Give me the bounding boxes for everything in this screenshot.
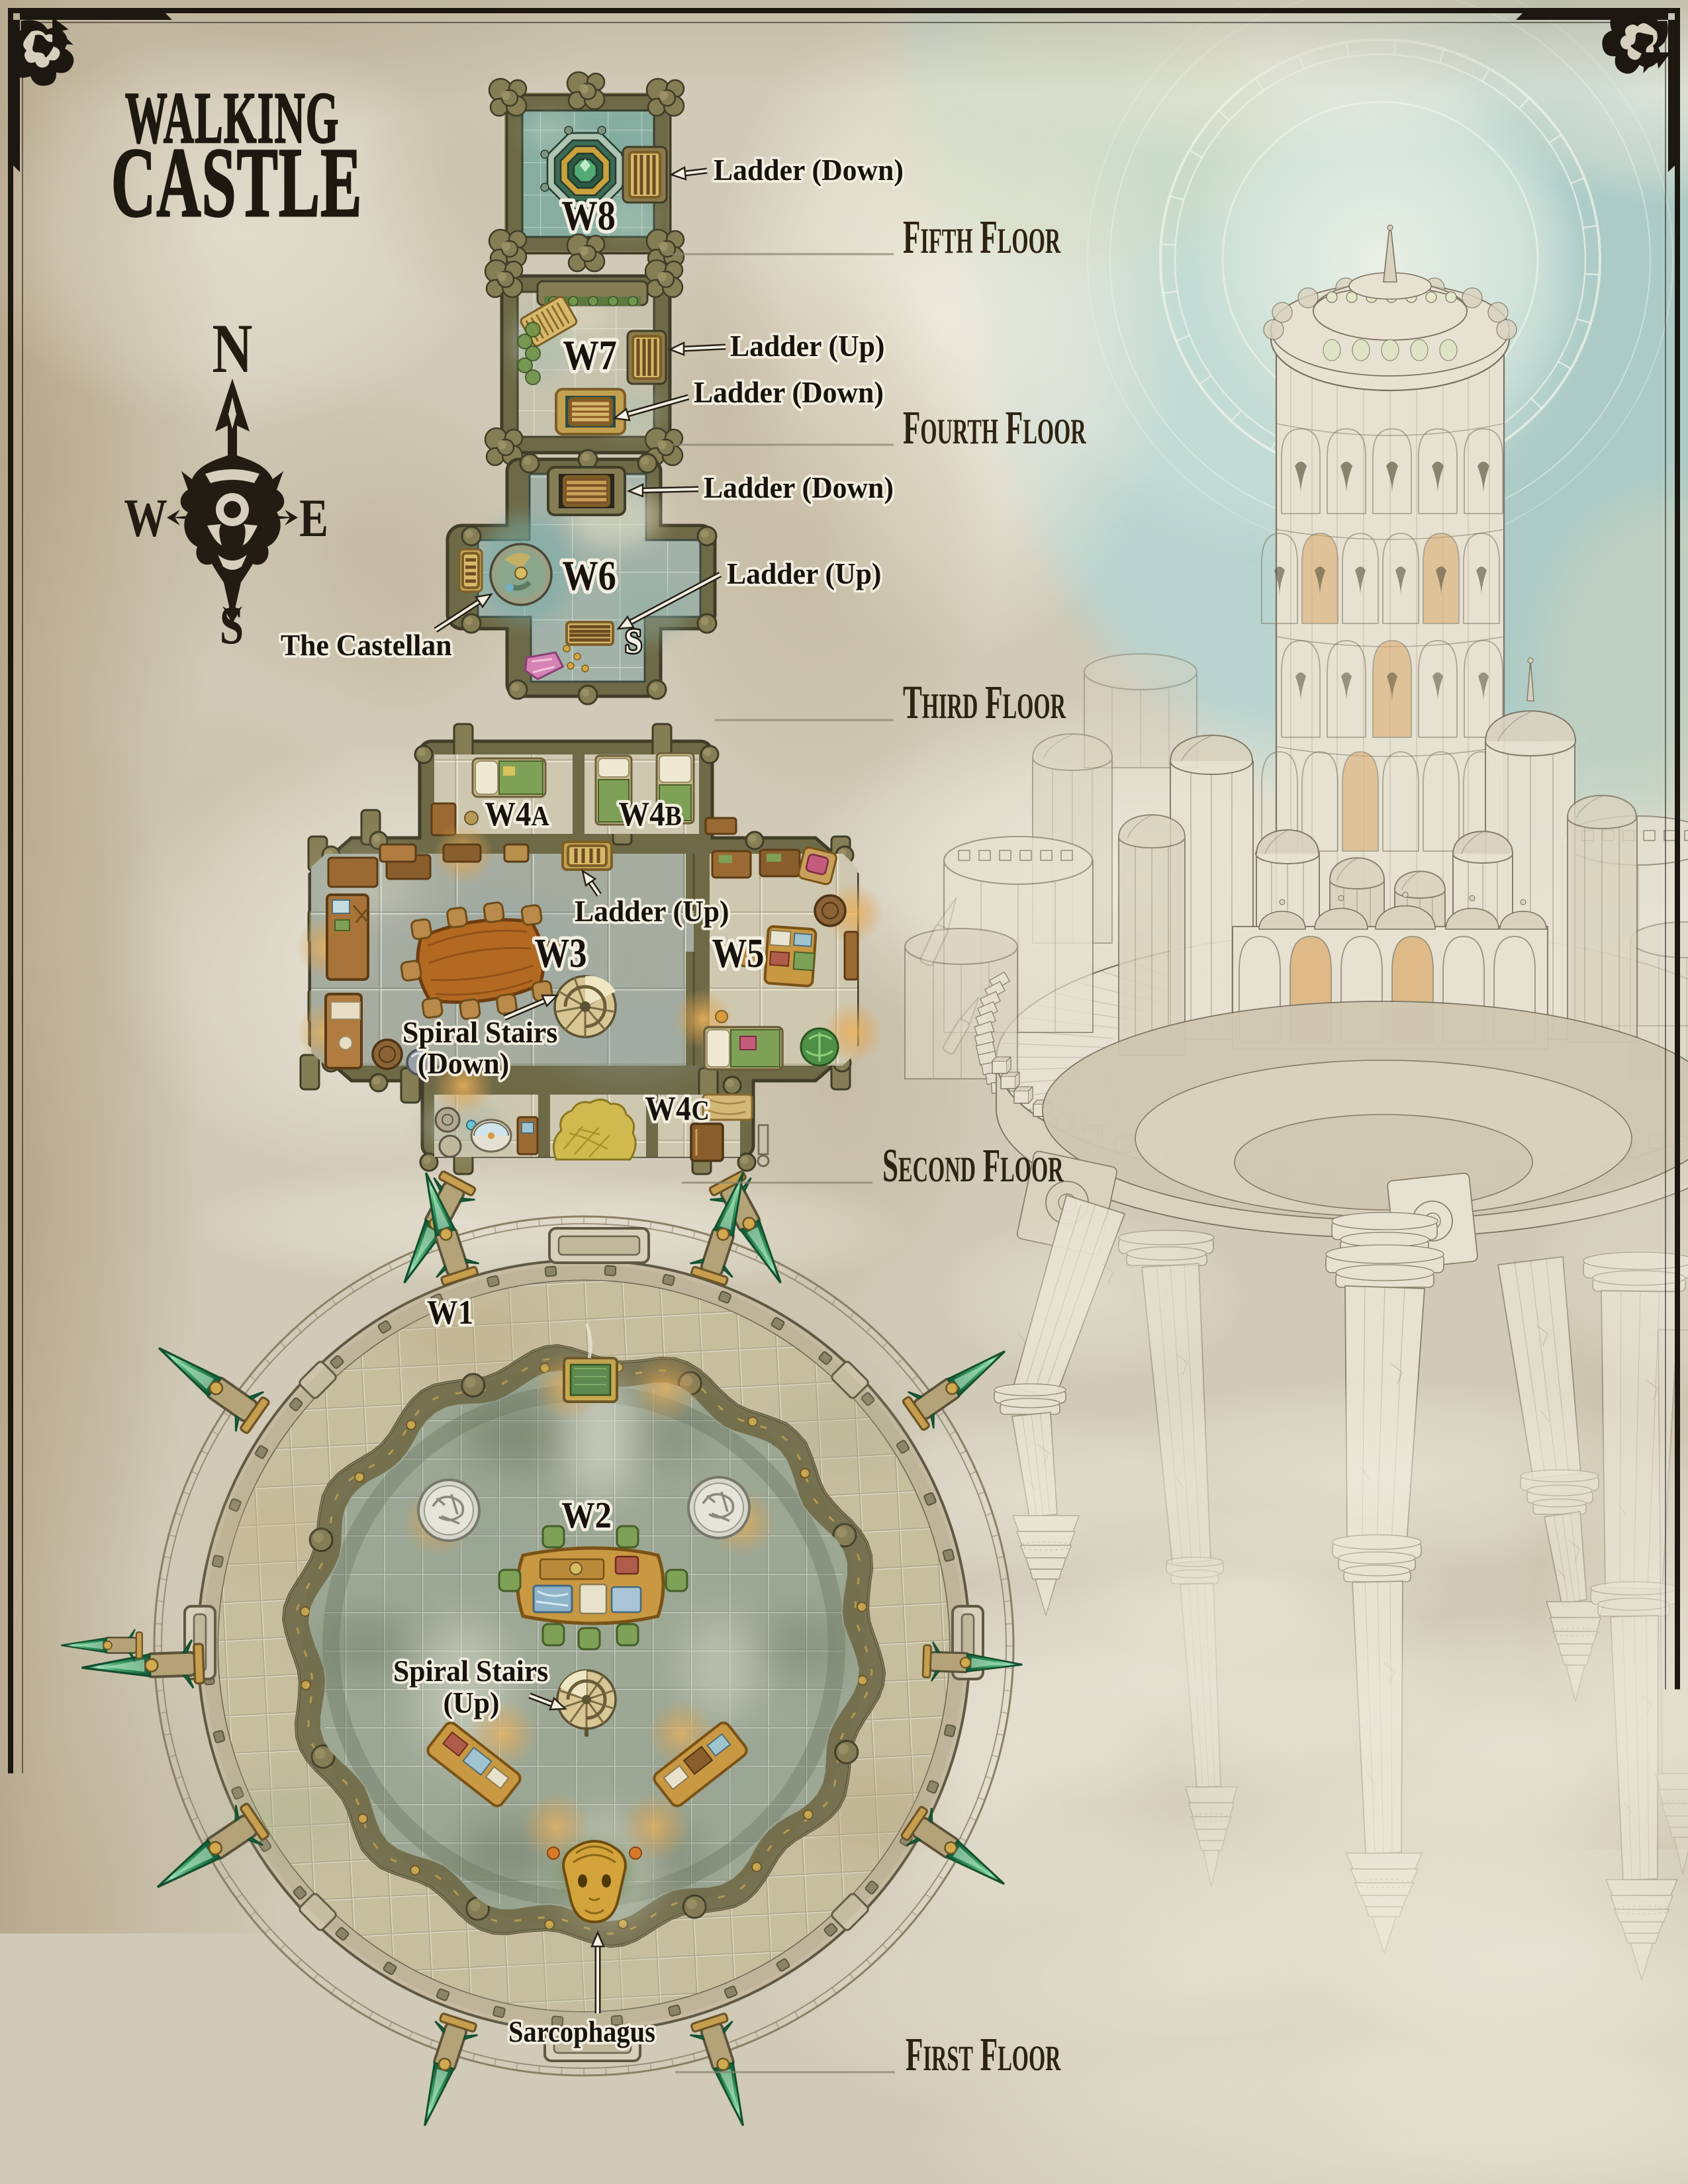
svg-text:S: S — [625, 622, 642, 660]
svg-text:W6: W6 — [562, 552, 616, 599]
svg-text:W2: W2 — [561, 1495, 612, 1536]
svg-text:The Castellan: The Castellan — [281, 628, 452, 662]
svg-text:W4B: W4B — [618, 795, 681, 833]
svg-text:(Up): (Up) — [444, 1686, 500, 1719]
svg-text:W: W — [124, 488, 167, 549]
svg-text:Ladder (Up): Ladder (Up) — [727, 557, 881, 590]
svg-text:W8: W8 — [561, 192, 616, 239]
svg-text:Ladder (Down): Ladder (Down) — [704, 471, 894, 504]
svg-text:CASTLE: CASTLE — [111, 128, 363, 238]
svg-text:W7: W7 — [563, 332, 617, 379]
svg-text:W5: W5 — [712, 931, 764, 976]
svg-text:(Down): (Down) — [418, 1046, 509, 1080]
svg-text:E: E — [299, 488, 328, 549]
svg-text:Spiral Stairs: Spiral Stairs — [393, 1654, 548, 1688]
svg-text:Ladder (Up): Ladder (Up) — [575, 894, 729, 928]
svg-text:Ladder (Up): Ladder (Up) — [730, 329, 884, 363]
svg-text:Spiral Stairs: Spiral Stairs — [402, 1015, 557, 1049]
svg-text:W1: W1 — [427, 1293, 473, 1332]
svg-text:W4A: W4A — [485, 795, 549, 833]
svg-text:W3: W3 — [534, 931, 586, 976]
svg-text:Ladder (Down): Ladder (Down) — [714, 153, 904, 187]
svg-text:MA4PS: MA4PS — [1644, 2027, 1666, 2095]
svg-text:Sarcophagus: Sarcophagus — [508, 2015, 655, 2049]
svg-text:N: N — [212, 309, 252, 387]
svg-text:W4C: W4C — [645, 1089, 709, 1128]
svg-text:Ladder (Down): Ladder (Down) — [694, 375, 884, 409]
